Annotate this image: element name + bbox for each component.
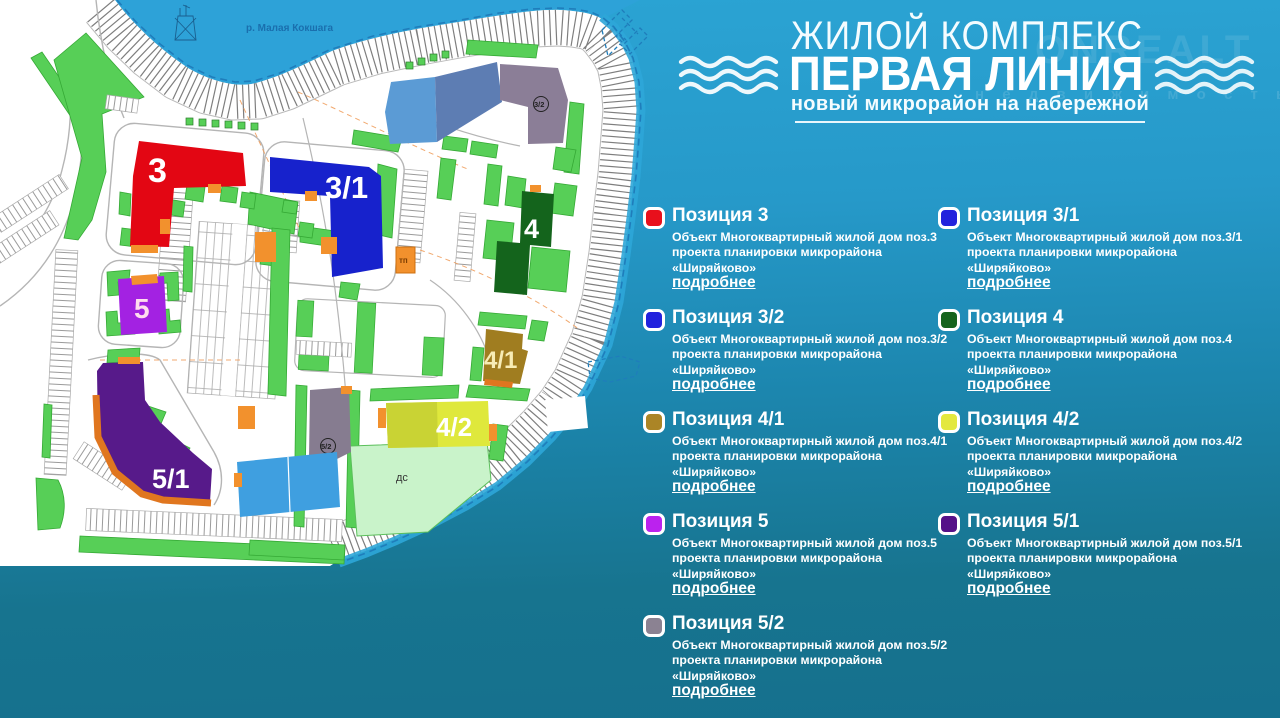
svg-text:3: 3: [148, 152, 167, 190]
svg-text:5/1: 5/1: [152, 464, 190, 494]
svg-text:4/1: 4/1: [484, 347, 517, 374]
svg-text:5: 5: [134, 293, 150, 324]
svg-text:дс: дс: [396, 472, 408, 484]
svg-text:3/2: 3/2: [534, 100, 544, 109]
svg-text:тп: тп: [399, 256, 408, 265]
svg-text:р. Малая Кокшага: р. Малая Кокшага: [246, 23, 333, 34]
svg-text:3/1: 3/1: [325, 170, 368, 205]
svg-text:4/2: 4/2: [436, 412, 472, 442]
svg-text:5/2: 5/2: [321, 442, 331, 451]
svg-text:4: 4: [524, 214, 539, 244]
